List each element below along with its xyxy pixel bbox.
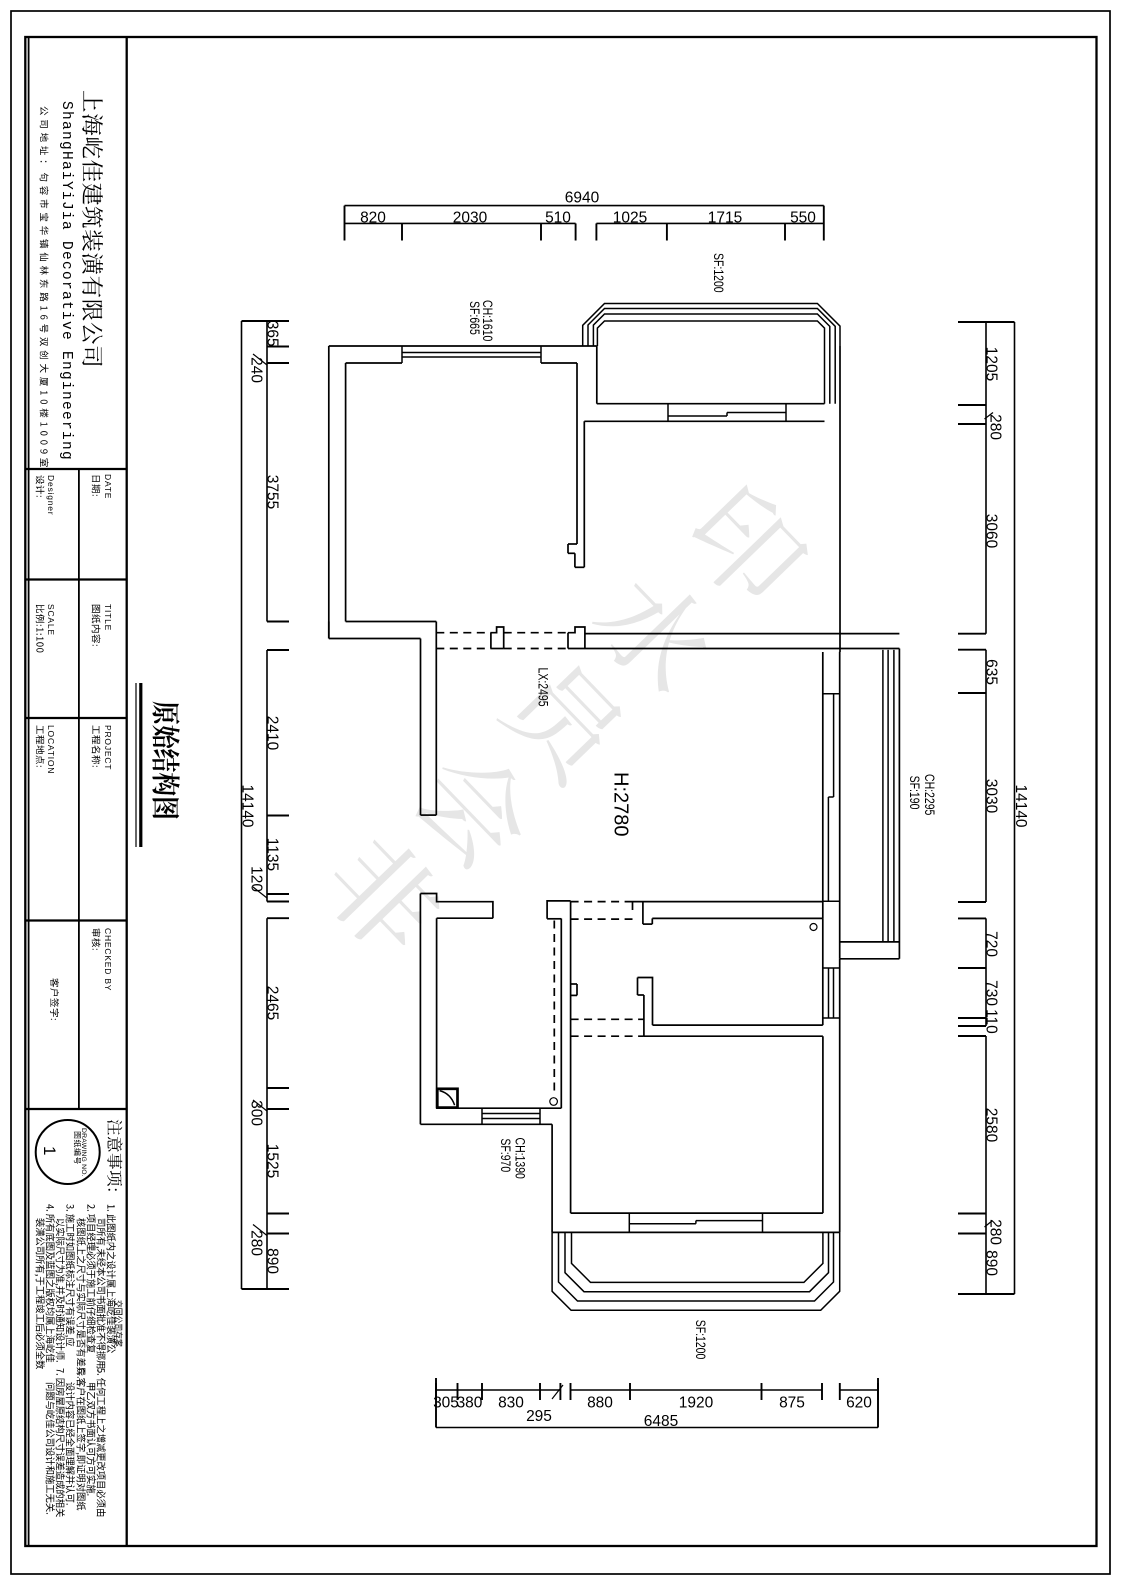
svg-text:3060: 3060 [983,514,1000,549]
svg-text:2580: 2580 [983,1108,1000,1143]
svg-text:CH:2295: CH:2295 [922,774,938,815]
svg-text:2465: 2465 [264,986,281,1020]
svg-text:ShangHaiYiJia Decorative Engin: ShangHaiYiJia Decorative Engineering [58,101,74,461]
svg-text:890: 890 [264,1248,281,1274]
svg-text:120: 120 [248,866,265,892]
svg-text:SCALE: SCALE [46,604,56,636]
svg-text:720: 720 [983,931,1000,957]
svg-text:2030: 2030 [453,210,488,227]
svg-text:635: 635 [983,659,1000,685]
svg-text:H:2780: H:2780 [610,772,632,837]
svg-text:LX:2495: LX:2495 [535,668,551,707]
svg-text:1205: 1205 [983,347,1000,381]
svg-text:1135: 1135 [264,838,281,871]
svg-text:880: 880 [587,1395,613,1412]
svg-text:110: 110 [983,1009,1000,1034]
svg-text:SF:190: SF:190 [907,776,923,810]
svg-text:730: 730 [983,980,1000,1006]
svg-text:SF:970: SF:970 [498,1138,514,1172]
svg-text:1920: 1920 [679,1395,714,1412]
svg-text:1715: 1715 [708,210,742,227]
svg-text:875: 875 [779,1395,805,1412]
svg-text:3755: 3755 [264,475,281,509]
svg-text:6940: 6940 [565,190,600,207]
svg-text:820: 820 [360,210,386,227]
svg-text:280: 280 [248,1230,265,1256]
svg-text:SF:1200: SF:1200 [692,1320,708,1360]
svg-text:380: 380 [457,1395,483,1412]
svg-text:365: 365 [264,321,281,347]
svg-text:LOCATION: LOCATION [46,725,56,774]
svg-text:1025: 1025 [613,210,647,227]
svg-text:280: 280 [987,414,1004,440]
svg-text:14140: 14140 [239,784,256,827]
svg-text:DRAWING NO.: DRAWING NO. [80,1128,87,1177]
svg-text:Designer: Designer [46,475,56,515]
svg-text:295: 295 [526,1408,552,1425]
svg-text:890: 890 [983,1250,1000,1276]
svg-text:TITLE: TITLE [103,604,113,631]
svg-text:300: 300 [248,1100,265,1126]
svg-text:830: 830 [498,1395,524,1412]
svg-text:1525: 1525 [264,1144,281,1178]
svg-text:550: 550 [790,210,816,227]
svg-text:6485: 6485 [644,1413,678,1430]
svg-text:1: 1 [40,1146,59,1155]
svg-text:CHECKED BY: CHECKED BY [103,928,113,991]
svg-text:PROJECT: PROJECT [103,725,113,770]
svg-text:620: 620 [846,1395,872,1412]
svg-text:SF:1200: SF:1200 [711,253,727,293]
svg-text:SF:665: SF:665 [467,301,483,335]
svg-text:3030: 3030 [983,779,1000,814]
svg-text:510: 510 [545,210,571,227]
svg-text:2410: 2410 [264,716,281,751]
svg-text:DATE: DATE [103,474,113,499]
svg-text:14140: 14140 [1012,784,1029,827]
